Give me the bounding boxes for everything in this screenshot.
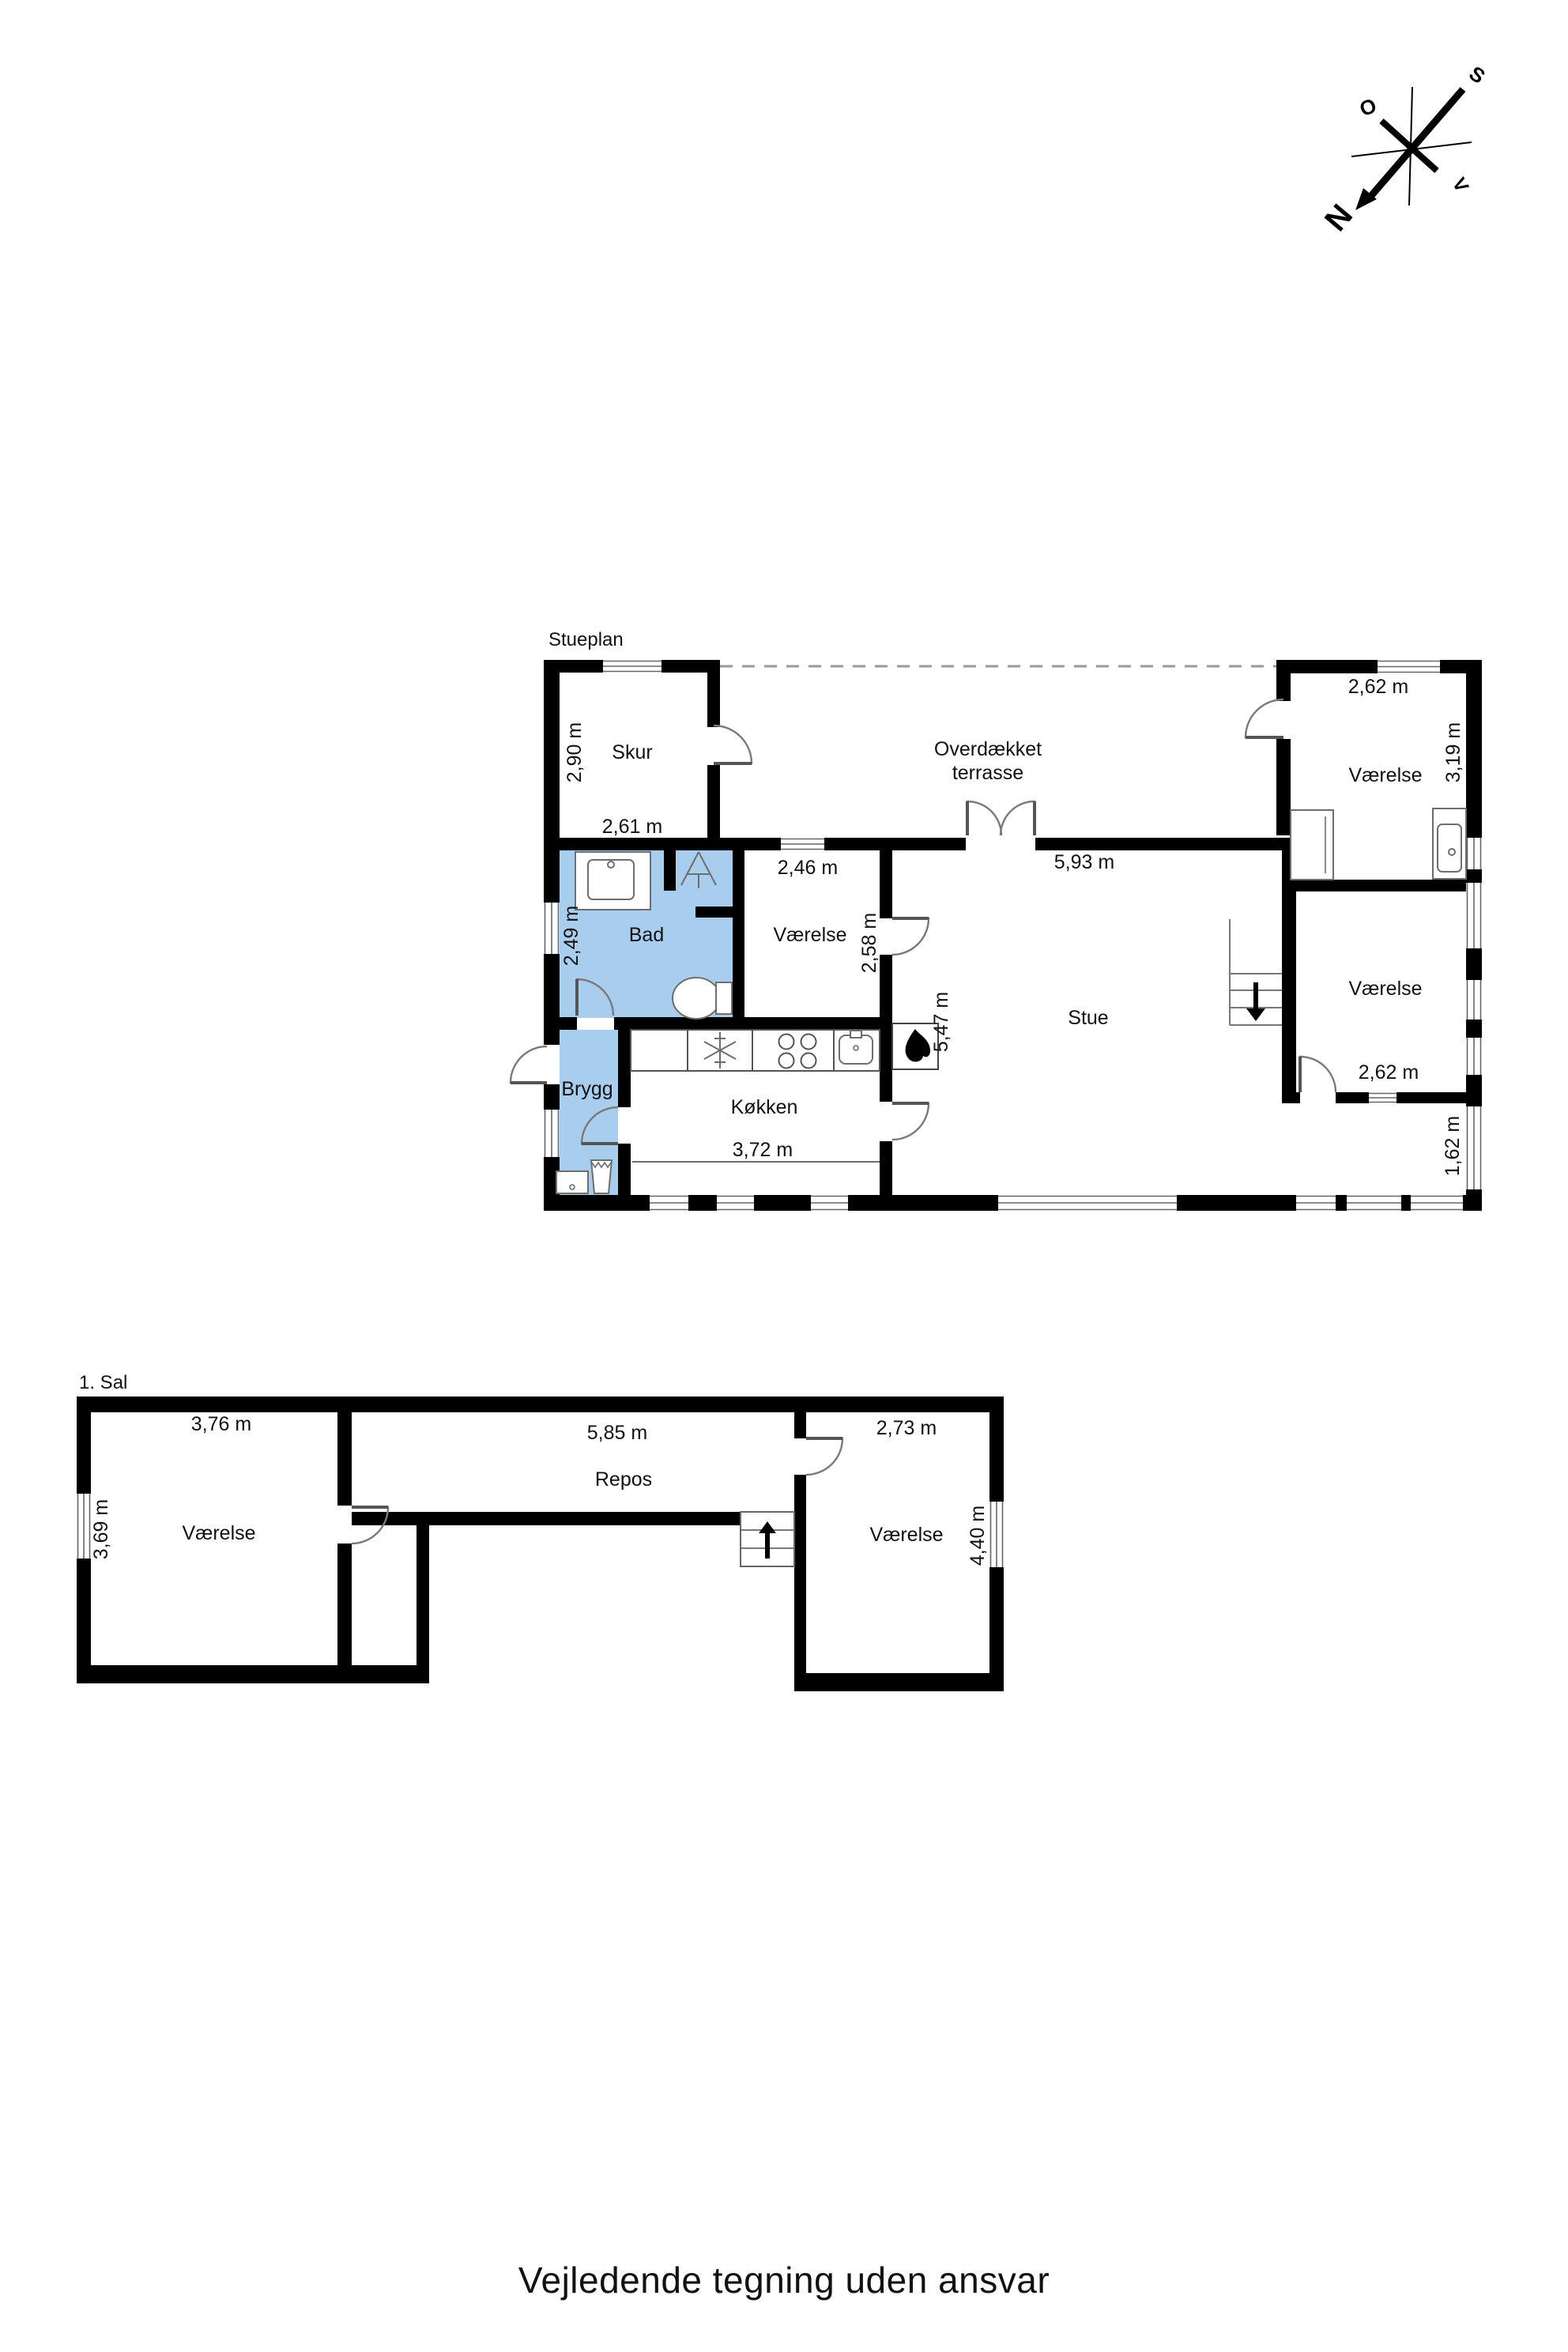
dimension-label: 4,40 m <box>966 1506 989 1566</box>
compass-letter: V <box>1448 175 1472 196</box>
room-label: Værelse <box>182 1521 255 1545</box>
door-arc <box>892 918 929 955</box>
dimension-label: 3,19 m <box>1442 722 1465 782</box>
dimension-label: 5,47 m <box>929 992 953 1052</box>
door-arc <box>582 1107 618 1144</box>
disclaimer-text: Vejledende tegning uden ansvar <box>518 2259 1050 2301</box>
door-arc <box>1246 699 1283 737</box>
floorplan-page: Stueplan 1. Sal SOVN Vejledende tegning … <box>0 0 1568 2352</box>
room-label: Køkken <box>731 1095 798 1119</box>
door-arc <box>577 979 613 1016</box>
stove-burner-icon <box>801 1053 816 1069</box>
room-label: Værelse <box>1348 763 1422 787</box>
door-arc <box>511 1046 547 1083</box>
dimension-label: 3,76 m <box>191 1412 251 1436</box>
dimension-label: 5,85 m <box>587 1421 647 1445</box>
dimension-label: 5,93 m <box>1054 850 1114 874</box>
dimension-label: 2,49 m <box>560 906 583 966</box>
sink-faucet-icon <box>1449 849 1455 855</box>
room-label: Værelse <box>1348 977 1422 1001</box>
stairs-down-arrow-icon <box>1246 1008 1265 1021</box>
room-label: Bad <box>629 923 664 947</box>
door-arc <box>806 1438 842 1475</box>
sink-faucet-icon <box>608 861 614 868</box>
dimension-label: 3,72 m <box>733 1138 793 1162</box>
room-label: Værelse <box>773 923 846 947</box>
compass-letter: N <box>1318 198 1359 237</box>
compass-letter: S <box>1464 61 1489 89</box>
dimension-label: 3,69 m <box>89 1499 113 1559</box>
groundfloor-title: Stueplan <box>548 629 624 651</box>
dimension-label: 2,46 m <box>778 856 838 880</box>
dimension-label: 2,62 m <box>1359 1061 1419 1084</box>
room-label: Stue <box>1068 1006 1108 1030</box>
door-arc <box>352 1507 388 1543</box>
dimension-label: 2,61 m <box>602 815 662 839</box>
dimension-label: 2,58 m <box>857 913 881 973</box>
dimension-label: 2,90 m <box>563 722 586 782</box>
dimension-label: 1,62 m <box>1441 1116 1464 1176</box>
door-arc <box>1001 801 1035 835</box>
room-label: Skur <box>612 741 652 764</box>
toilet-icon <box>673 978 720 1019</box>
room-label: Værelse <box>869 1523 943 1547</box>
firstfloor-title: 1. Sal <box>79 1372 127 1394</box>
dimension-label: 2,62 m <box>1348 675 1408 699</box>
stove-burner-icon <box>801 1035 816 1050</box>
door-arc <box>892 1103 929 1140</box>
door-arc <box>714 726 752 763</box>
stove-burner-icon <box>779 1053 794 1069</box>
door-arc <box>967 801 1001 835</box>
compass-letter: O <box>1356 93 1379 121</box>
door-arc <box>1300 1057 1336 1092</box>
dimension-label: 2,73 m <box>876 1416 937 1440</box>
plan-drawing-overlay: SOVN <box>0 0 1568 2352</box>
room-label: Overdækket terrasse <box>934 737 1042 785</box>
room-label: Brygg <box>561 1077 612 1101</box>
stove-burner-icon <box>779 1035 794 1050</box>
room-label: Repos <box>595 1468 652 1491</box>
